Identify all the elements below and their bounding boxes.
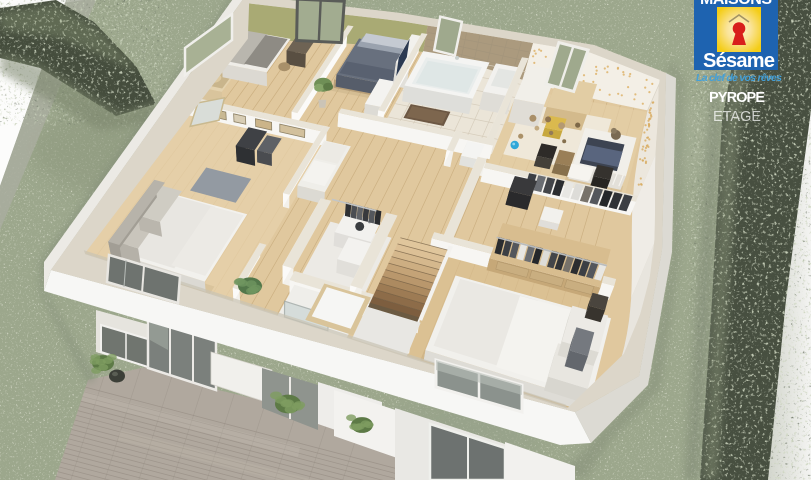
svg-text:Sésame: Sésame bbox=[703, 50, 775, 72]
svg-text:MAISONS: MAISONS bbox=[700, 0, 772, 8]
svg-text:ETAGE: ETAGE bbox=[713, 109, 761, 125]
svg-text:La clef de vos rêves: La clef de vos rêves bbox=[696, 72, 782, 84]
svg-text:PYROPE: PYROPE bbox=[709, 90, 765, 106]
